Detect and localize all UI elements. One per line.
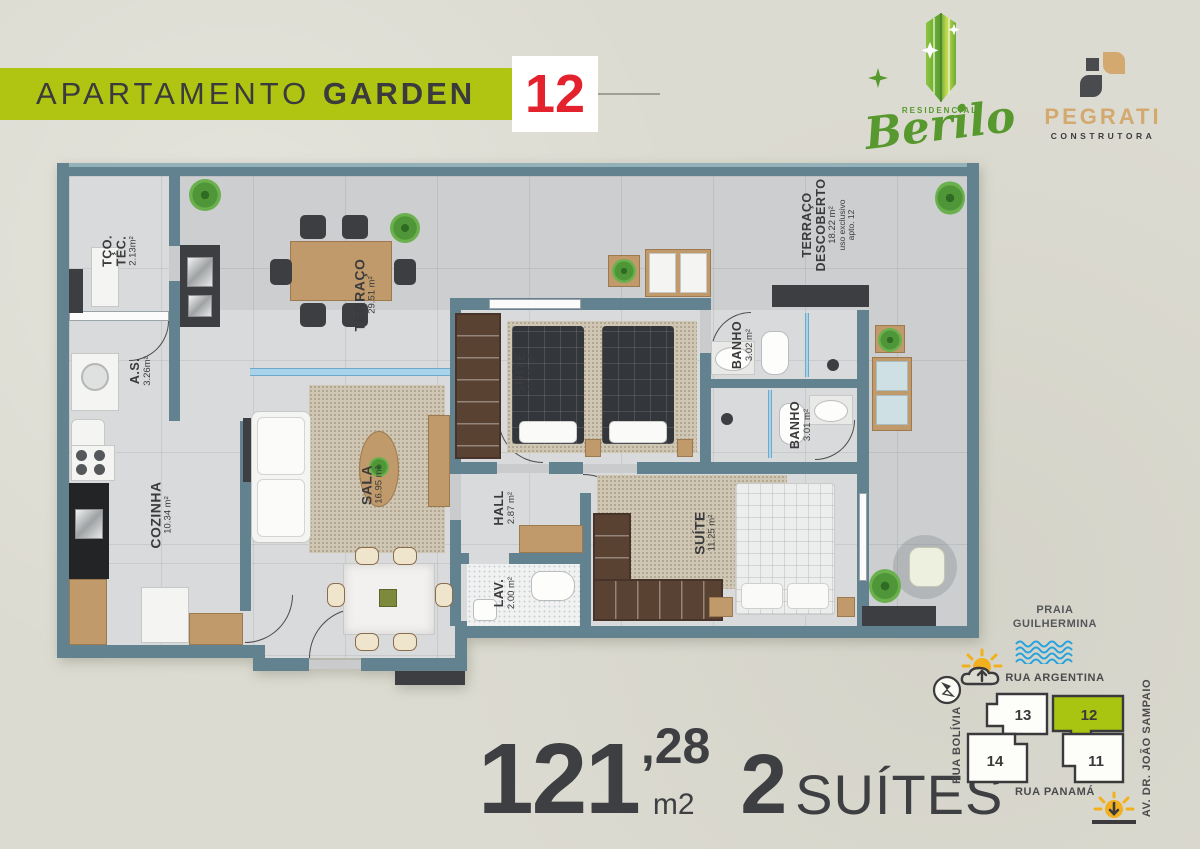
plant-icon — [189, 179, 221, 211]
fridge — [141, 587, 189, 643]
street-right-label: AV. DR. JOÃO SAMPAIO — [1141, 679, 1153, 817]
wall-hall-top-b — [549, 462, 583, 474]
tco-door-threshold — [169, 246, 180, 281]
area-fraction: ,28 — [641, 726, 711, 766]
wall-outer-right — [967, 163, 979, 638]
banho2-shower-glass — [768, 390, 772, 458]
room-label-as: A.S. 3.26m² — [129, 356, 153, 386]
terrace-ledge — [772, 285, 869, 307]
lot-13-number: 13 — [1015, 707, 1032, 724]
hall-opening-threshold — [450, 473, 461, 520]
suite1-wardrobe — [455, 313, 501, 459]
unit-number: 12 — [525, 63, 585, 125]
room-label-sala: SALA 16.95 m² — [359, 465, 384, 505]
hall-runner — [519, 525, 583, 553]
wall-lav-top-b — [509, 553, 591, 564]
suite2-door-threshold — [583, 464, 637, 473]
wall-outer-top-cap — [57, 163, 979, 167]
dining-chair — [393, 633, 417, 651]
tech-panel — [69, 269, 83, 313]
nightstand — [677, 439, 693, 457]
wall-suite1-right — [700, 353, 711, 474]
suite1-pillow — [519, 421, 577, 443]
berilo-logo: RESIDENCIAL Berilo — [860, 12, 1020, 152]
banho2-sink — [814, 400, 848, 422]
berilo-crystal-icon — [910, 12, 972, 106]
street-left-label: RUA BOLÍVIA — [951, 706, 963, 784]
banho1-toilet — [761, 331, 789, 375]
wall-as-right — [169, 321, 180, 421]
plant-icon — [878, 328, 902, 352]
area-summary: 121 ,28 m2 2 SUÍTES — [478, 714, 1003, 818]
room-label-lav: LAV. 2.00 m² — [493, 577, 517, 609]
lot-14-number: 14 — [987, 753, 1004, 770]
plant-icon — [390, 213, 420, 243]
unit-number-box: 12 — [512, 56, 598, 132]
pegrati-mark-icon — [1080, 52, 1126, 98]
dining-chair — [355, 547, 379, 565]
suite1-door-threshold — [497, 464, 549, 473]
wall-tco-right-a — [169, 176, 180, 246]
dining-chair — [393, 547, 417, 565]
loveseat-cushion — [649, 253, 676, 293]
nightstand — [837, 597, 855, 617]
glass-living-terrace — [250, 368, 455, 376]
sofa-cushion — [257, 417, 305, 475]
suite2-closet-horizontal — [593, 579, 723, 621]
banho1-shower-drain — [827, 359, 839, 371]
lots-map: 13 12 14 11 — [963, 690, 1128, 786]
pegrati-logo: PEGRATI CONSTRUTORA — [1028, 52, 1178, 144]
lot-11-number: 11 — [1088, 753, 1104, 770]
banho1-door-threshold — [700, 310, 711, 353]
sunset-icon — [1090, 790, 1138, 828]
pegrati-subtitle: CONSTRUTORA — [1028, 131, 1178, 141]
banho1-shower-glass — [805, 313, 809, 377]
wall-bottom-kitchen — [57, 645, 265, 658]
window-suite1 — [489, 299, 581, 309]
banner-divider-line — [598, 93, 660, 95]
entry-door-threshold — [309, 660, 361, 669]
loveseat-cushion — [680, 253, 707, 293]
banho2-shower-drain — [721, 413, 733, 425]
beach-label: PRAIA GUILHERMINA — [993, 604, 1117, 632]
nightstand — [709, 597, 733, 617]
wall-bottom-living-b — [361, 658, 467, 671]
suites-count: 2 — [740, 752, 787, 818]
dining-chair — [435, 583, 453, 607]
console-table — [428, 415, 450, 507]
sofa-cushion — [257, 479, 305, 537]
terrace-chair — [300, 303, 326, 327]
dining-chair — [327, 583, 345, 607]
berilo-name: Berilo — [852, 90, 1029, 162]
area-unit: m2 — [653, 791, 711, 818]
room-label-terraco-descoberto: TERRAÇO DESCOBERTO 18.22 m² uso exclusiv… — [801, 179, 857, 272]
kitchen-counter-wood — [69, 579, 107, 645]
pegrati-name: PEGRATI — [1028, 104, 1178, 130]
grill-sink — [188, 295, 212, 317]
window-tco-as — [69, 311, 169, 321]
ac-unit — [395, 671, 465, 685]
room-label-tco-tec: TÇO. TÉC. 2.13m² — [101, 235, 138, 267]
kitchen-mat — [189, 613, 243, 645]
wall-bottom-right — [455, 626, 979, 638]
dining-chair — [355, 633, 379, 651]
wall-hall-top-c — [637, 462, 869, 474]
lot-12-number: 12 — [1081, 707, 1098, 724]
suite1-pillow — [609, 421, 667, 443]
lav-toilet — [531, 571, 575, 601]
room-label-terraco: TERRAÇO 29.51 m² — [352, 259, 377, 332]
room-label-cozinha: COZINHA 10.34 m² — [148, 481, 173, 548]
burner — [76, 450, 87, 461]
burner — [94, 450, 105, 461]
wall-outer-left — [57, 163, 69, 658]
terrace-bench — [862, 606, 936, 626]
suite2-pillow — [787, 583, 829, 609]
plant-icon — [612, 259, 636, 283]
wall-banho-divider — [700, 379, 868, 388]
room-label-hall: HALL 2.87 m² — [493, 490, 517, 525]
table-centerpiece — [379, 589, 397, 607]
room-label-banho2: BANHO 3.01 m² — [789, 401, 813, 449]
compass-icon — [931, 674, 963, 706]
hanging-chair — [909, 547, 945, 587]
room-label-banho1: BANHO 3.02 m² — [731, 321, 755, 369]
terrace-chair — [270, 259, 292, 285]
room-label-suite2: SUÍTE 11.25 m² — [692, 511, 717, 555]
suite2-closet-vertical — [593, 513, 631, 585]
plant-icon — [935, 181, 965, 215]
wall-suite1-right-stub — [700, 298, 711, 310]
burner — [94, 464, 105, 475]
suite2-pillow — [741, 583, 783, 609]
wall-living-lav — [450, 520, 461, 626]
wall-lav-top-a — [461, 553, 469, 564]
floor-plan: TÇO. TÉC. 2.13m² A.S. 3.26m² COZINHA 10.… — [57, 163, 979, 683]
washer-drum — [81, 363, 109, 391]
grill-top — [187, 257, 213, 287]
area-whole: 121 — [478, 740, 639, 818]
page-title: APARTAMENTO GARDEN — [36, 76, 475, 112]
terrace-chair — [342, 215, 368, 239]
kitchen-sink — [75, 509, 103, 539]
plant-icon — [869, 569, 901, 603]
terrace-chair — [394, 259, 416, 285]
street-top-label: RUA ARGENTINA — [1000, 672, 1110, 684]
wall-banho-right — [857, 310, 869, 474]
tv-panel — [243, 418, 251, 482]
title-banner: APARTAMENTO GARDEN — [0, 68, 512, 120]
water-waves-icon — [1015, 640, 1081, 664]
strip-chair-cushion — [876, 361, 908, 391]
berilo-sparkle-icon — [868, 68, 888, 88]
burner — [76, 464, 87, 475]
window-suite2 — [859, 493, 867, 581]
strip-chair-cushion — [876, 395, 908, 425]
wall-tco-right-b — [169, 281, 180, 321]
sunrise-icon — [956, 646, 1008, 692]
terrace-chair — [300, 215, 326, 239]
nightstand — [585, 439, 601, 457]
wall-bottom-living-a — [253, 658, 309, 671]
wall-hall-top-a — [450, 462, 497, 474]
room-label-suite1: SUÍTE 10.79 m² — [512, 351, 537, 395]
